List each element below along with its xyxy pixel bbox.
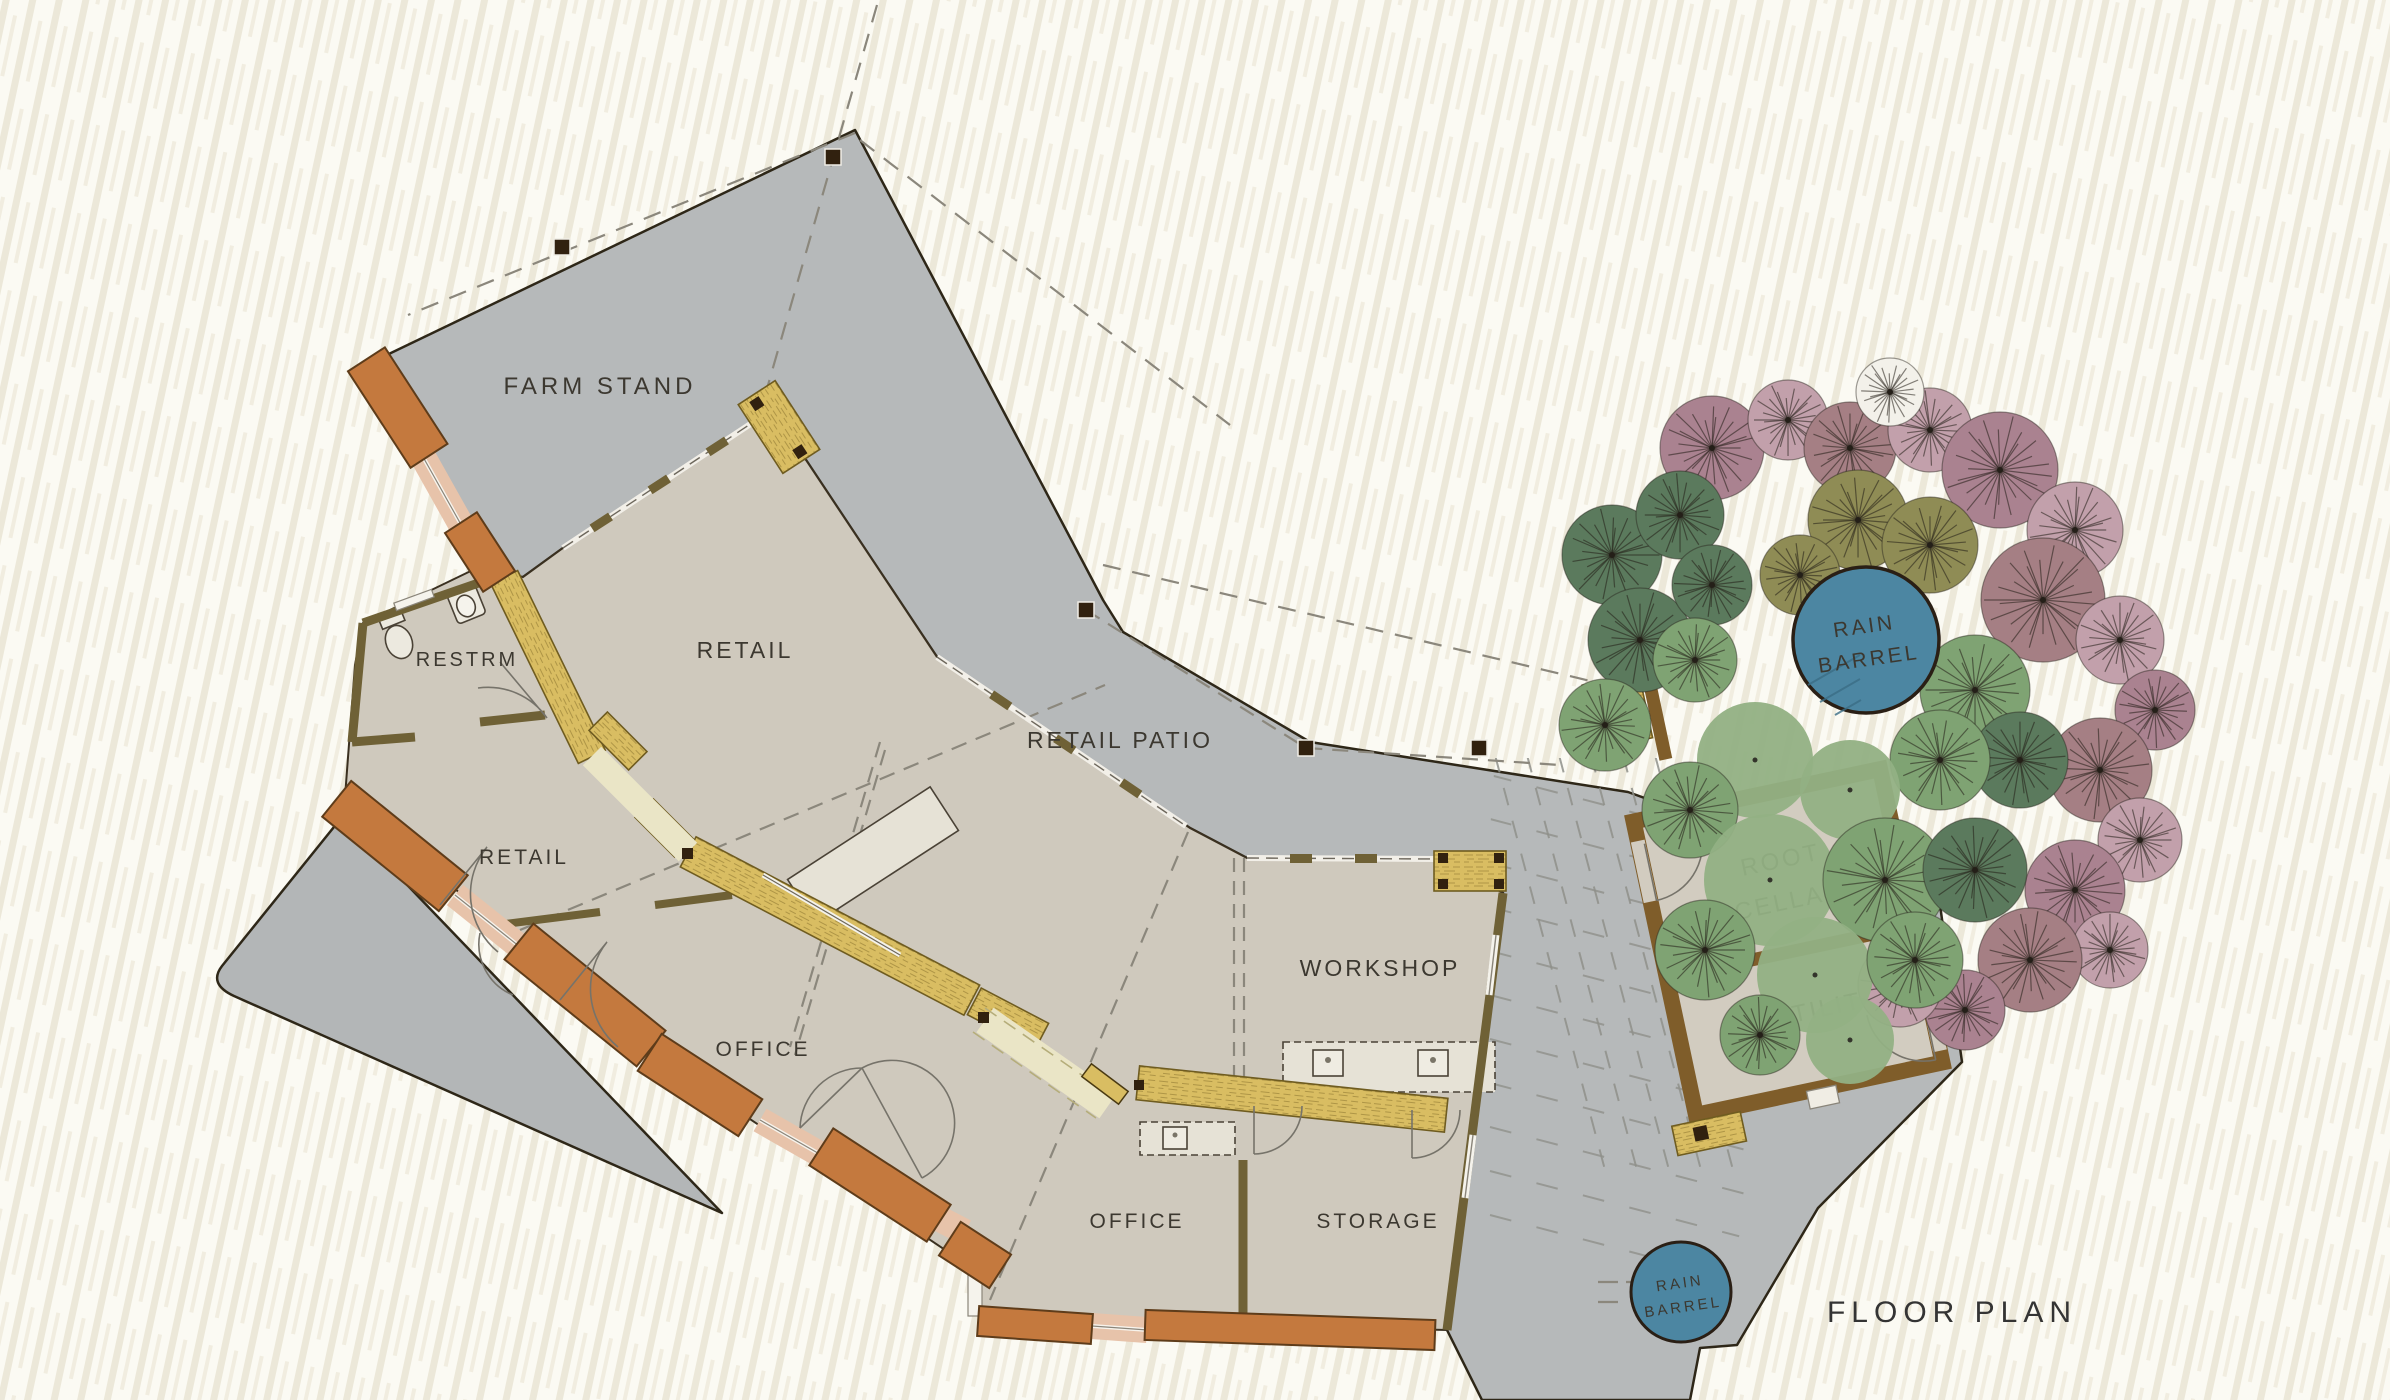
- area-label-retail-patio: RETAIL PATIO: [1027, 727, 1213, 753]
- tree-icon: [1655, 900, 1755, 1000]
- tree-icon: [1856, 358, 1924, 426]
- room-label-retail-main: RETAIL: [697, 637, 794, 663]
- roof-post-icon: [1078, 602, 1094, 618]
- room-label-office-west: OFFICE: [716, 1038, 811, 1061]
- room-label-workshop: WORKSHOP: [1300, 955, 1461, 981]
- room-label-restroom: RESTRM: [416, 649, 518, 671]
- floor-plan-drawing: ROOTCELLAR UTILITY RAINBARREL RAINBARREL…: [0, 0, 2390, 1400]
- tree-icon: [1653, 618, 1737, 702]
- tree-icon: [1806, 996, 1894, 1084]
- rain-barrel-south: RAINBARREL: [1631, 1242, 1731, 1342]
- rain-barrel-north: RAINBARREL: [1793, 567, 1939, 715]
- tree-icon: [1890, 710, 1990, 810]
- tree-icon: [2072, 912, 2148, 988]
- sink-icon: [1163, 1127, 1187, 1149]
- roof-post-icon: [825, 149, 841, 165]
- area-label-farm-stand: FARM STAND: [504, 373, 697, 400]
- tree-icon: [1923, 818, 2027, 922]
- roof-post-icon: [1298, 740, 1314, 756]
- room-label-storage: STORAGE: [1316, 1210, 1439, 1233]
- roof-post-icon: [554, 239, 570, 255]
- tree-icon: [1672, 545, 1752, 625]
- tree-icon: [1867, 912, 1963, 1008]
- drawing-title: FLOOR PLAN: [1827, 1296, 2077, 1329]
- floor-plan-page: ROOTCELLAR UTILITY RAINBARREL RAINBARREL…: [0, 0, 2390, 1400]
- office-counter: [1140, 1122, 1235, 1155]
- room-label-office-south: OFFICE: [1090, 1210, 1185, 1233]
- roof-post-icon: [1471, 740, 1487, 756]
- tree-icon: [1559, 679, 1651, 771]
- tree-icon: [1720, 995, 1800, 1075]
- room-label-retail-west: RETAIL: [479, 846, 569, 869]
